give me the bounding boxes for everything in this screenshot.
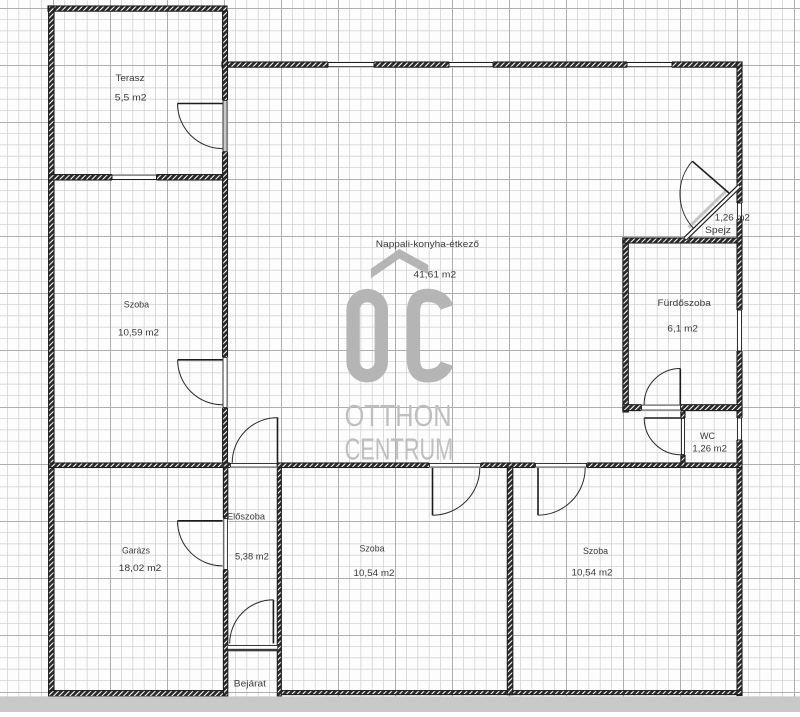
svg-text:1,26 m2: 1,26 m2: [692, 444, 727, 455]
svg-text:18,02 m2: 18,02 m2: [119, 563, 162, 574]
svg-text:41,61 m2: 41,61 m2: [413, 270, 456, 281]
svg-text:10,59 m2: 10,59 m2: [118, 328, 159, 339]
svg-text:6,1 m2: 6,1 m2: [667, 324, 698, 335]
svg-text:Szoba: Szoba: [124, 300, 150, 311]
svg-text:5,5 m2: 5,5 m2: [115, 92, 147, 103]
svg-text:Szoba: Szoba: [583, 546, 609, 557]
svg-text:Bejárat: Bejárat: [234, 678, 267, 689]
svg-text:WC: WC: [700, 431, 715, 442]
svg-text:Szoba: Szoba: [360, 544, 386, 555]
svg-text:Fürdőszoba: Fürdőszoba: [658, 298, 712, 309]
svg-text:1,26 m2: 1,26 m2: [715, 213, 750, 224]
svg-text:5,38 m2: 5,38 m2: [235, 552, 269, 563]
svg-text:OTTHON: OTTHON: [345, 398, 452, 433]
svg-text:CENTRUM: CENTRUM: [345, 432, 454, 467]
svg-text:Nappali-konyha-étkező: Nappali-konyha-étkező: [376, 239, 479, 250]
svg-text:Garázs: Garázs: [122, 546, 150, 557]
svg-text:10,54 m2: 10,54 m2: [354, 568, 395, 579]
svg-text:Spejz: Spejz: [705, 225, 731, 236]
svg-text:Előszoba: Előszoba: [227, 512, 266, 523]
svg-text:10,54 m2: 10,54 m2: [572, 568, 613, 579]
svg-text:Terasz: Terasz: [116, 73, 145, 84]
